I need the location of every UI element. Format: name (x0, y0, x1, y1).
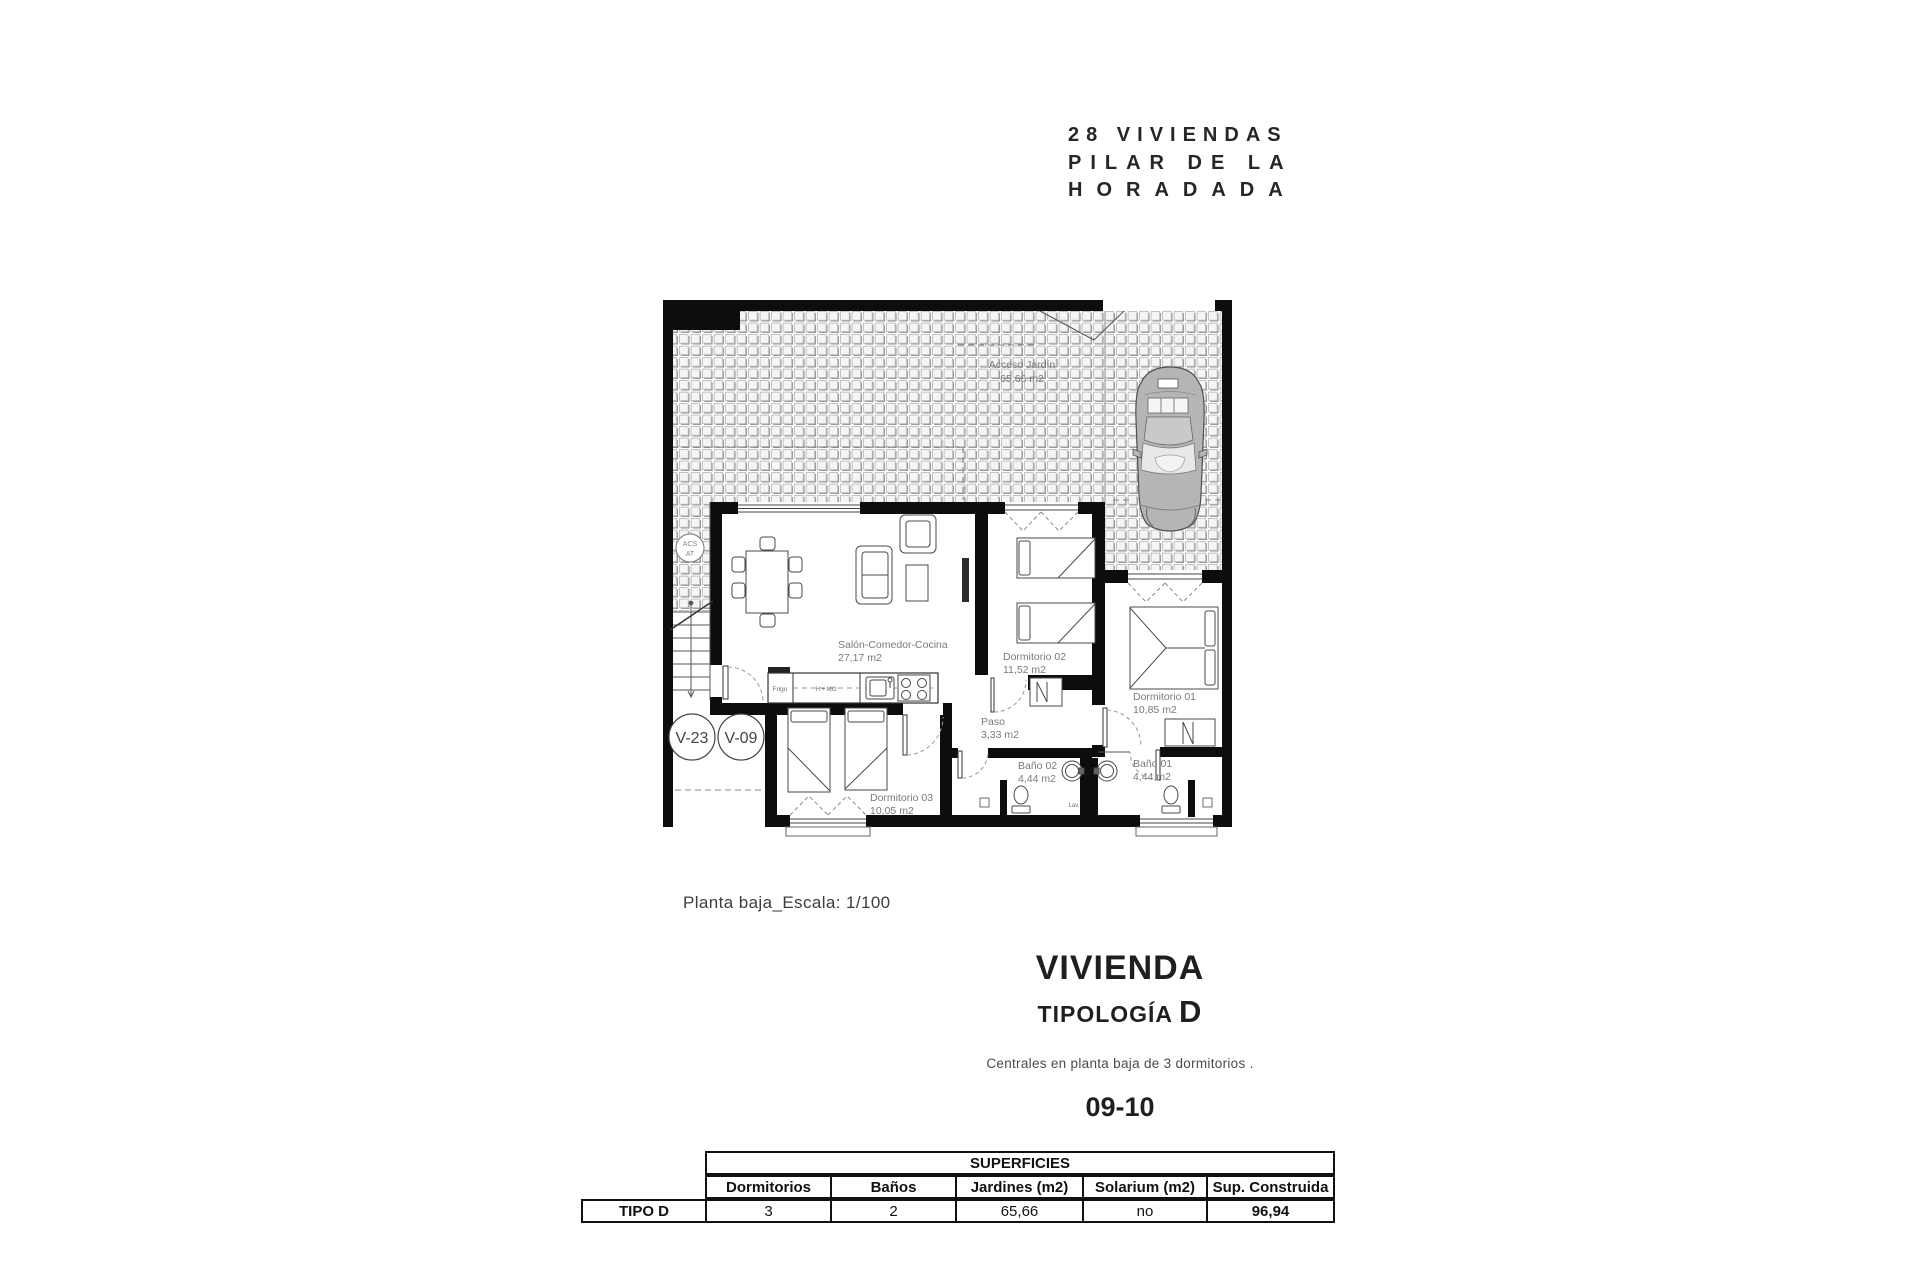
armchair (900, 515, 936, 553)
kitchen-hob (898, 675, 930, 701)
tv (962, 558, 969, 602)
project-title-line2: PILAR DE LA (1068, 150, 1297, 178)
room-label-salon: Salón-Comedor-Cocina (838, 639, 948, 651)
tipologia-line: TIPOLOGÍAD (955, 994, 1285, 1030)
marker-v23: V-23 (676, 730, 709, 747)
oven-label: H + MO (816, 687, 837, 693)
dorm02-beds (1017, 538, 1095, 643)
value-dormitorios: 3 (705, 1199, 832, 1223)
value-solarium: no (1082, 1199, 1208, 1223)
project-title: 28 VIVIENDAS PILAR DE LA HORADADA (1068, 122, 1297, 205)
col-jardines: Jardines (m2) (955, 1175, 1084, 1199)
project-title-line3: HORADADA (1068, 177, 1297, 205)
acs-label-1: ACS (683, 541, 698, 548)
vivienda-heading: VIVIENDA (955, 950, 1285, 986)
col-dormitorios: Dormitorios (705, 1175, 832, 1199)
room-label-paso: Paso (981, 716, 1005, 728)
tipologia-label: TIPOLOGÍA (1038, 1001, 1174, 1027)
surfaces-title-row: SUPERFICIES (581, 1153, 1341, 1177)
sofa (856, 546, 892, 604)
room-area-salon: 27,17 m2 (838, 652, 882, 664)
garden-label: Acceso Jardín (989, 359, 1056, 371)
title-block: VIVIENDA TIPOLOGÍAD (955, 950, 1285, 1030)
room-area-dorm02: 11,52 m2 (1003, 664, 1046, 676)
room-label-dorm02: Dormitorio 02 (1003, 651, 1066, 663)
unit-numbers: 09-10 (955, 1092, 1285, 1123)
room-label-dorm03: Dormitorio 03 (870, 792, 933, 804)
room-label-bano02: Baño 02 (1018, 760, 1057, 772)
kitchen-counter (768, 667, 938, 703)
surfaces-header-row: Dormitorios Baños Jardines (m2) Solarium… (581, 1177, 1341, 1201)
col-sup-construida: Sup. Construida (1206, 1175, 1335, 1199)
type-description: Centrales en planta baja de 3 dormitorio… (975, 1056, 1265, 1071)
floor-plan-drawing: ACS AT V-23 V-09 Acceso Jardín 65,66 m2 … (640, 280, 1280, 870)
dorm01-bed (1130, 607, 1218, 689)
project-title-line1: 28 VIVIENDAS (1068, 122, 1297, 150)
fridge-label: Frigo (773, 686, 788, 693)
room-area-bano02: 4,44 m2 (1018, 773, 1056, 785)
room-area-dorm03: 10,05 m2 (870, 805, 914, 817)
value-banos: 2 (830, 1199, 957, 1223)
room-label-dorm01: Dormitorio 01 (1133, 691, 1196, 703)
marker-v09: V-09 (725, 730, 758, 747)
car (1133, 367, 1207, 531)
room-area-bano01: 4,44 m2 (1133, 771, 1171, 783)
surfaces-value-row: TIPO D 3 2 65,66 no 96,94 (581, 1201, 1341, 1223)
table-spacer (581, 1177, 707, 1201)
coffee-table (906, 565, 928, 601)
room-label-bano01: Baño 01 (1133, 758, 1172, 770)
plan-caption: Planta baja_Escala: 1/100 (683, 893, 891, 913)
type-letter: D (1179, 994, 1202, 1029)
room-area-dorm01: 10,85 m2 (1133, 704, 1177, 716)
value-jardines: 65,66 (955, 1199, 1084, 1223)
dining-table (732, 537, 802, 627)
kitchen-sink (866, 677, 894, 699)
col-banos: Baños (830, 1175, 957, 1199)
room-area-paso: 3,33 m2 (981, 729, 1019, 741)
dorm03-beds (788, 708, 887, 792)
col-solarium: Solarium (m2) (1082, 1175, 1208, 1199)
surfaces-table: SUPERFICIES Dormitorios Baños Jardines (… (581, 1153, 1341, 1223)
unit-markers: V-23 V-09 (669, 714, 764, 760)
surfaces-title: SUPERFICIES (705, 1151, 1335, 1175)
row-label: TIPO D (581, 1199, 707, 1223)
sink-label: Lav. (1069, 803, 1080, 809)
acs-marker: ACS AT (676, 534, 704, 562)
value-sup-construida: 96,94 (1206, 1199, 1335, 1223)
acs-label-2: AT (686, 551, 695, 558)
page: { "project": { "title_line1": "28 VIVIEN… (0, 0, 1920, 1280)
table-spacer (581, 1153, 707, 1177)
garden-area: 65,66 m2 (1000, 373, 1044, 385)
